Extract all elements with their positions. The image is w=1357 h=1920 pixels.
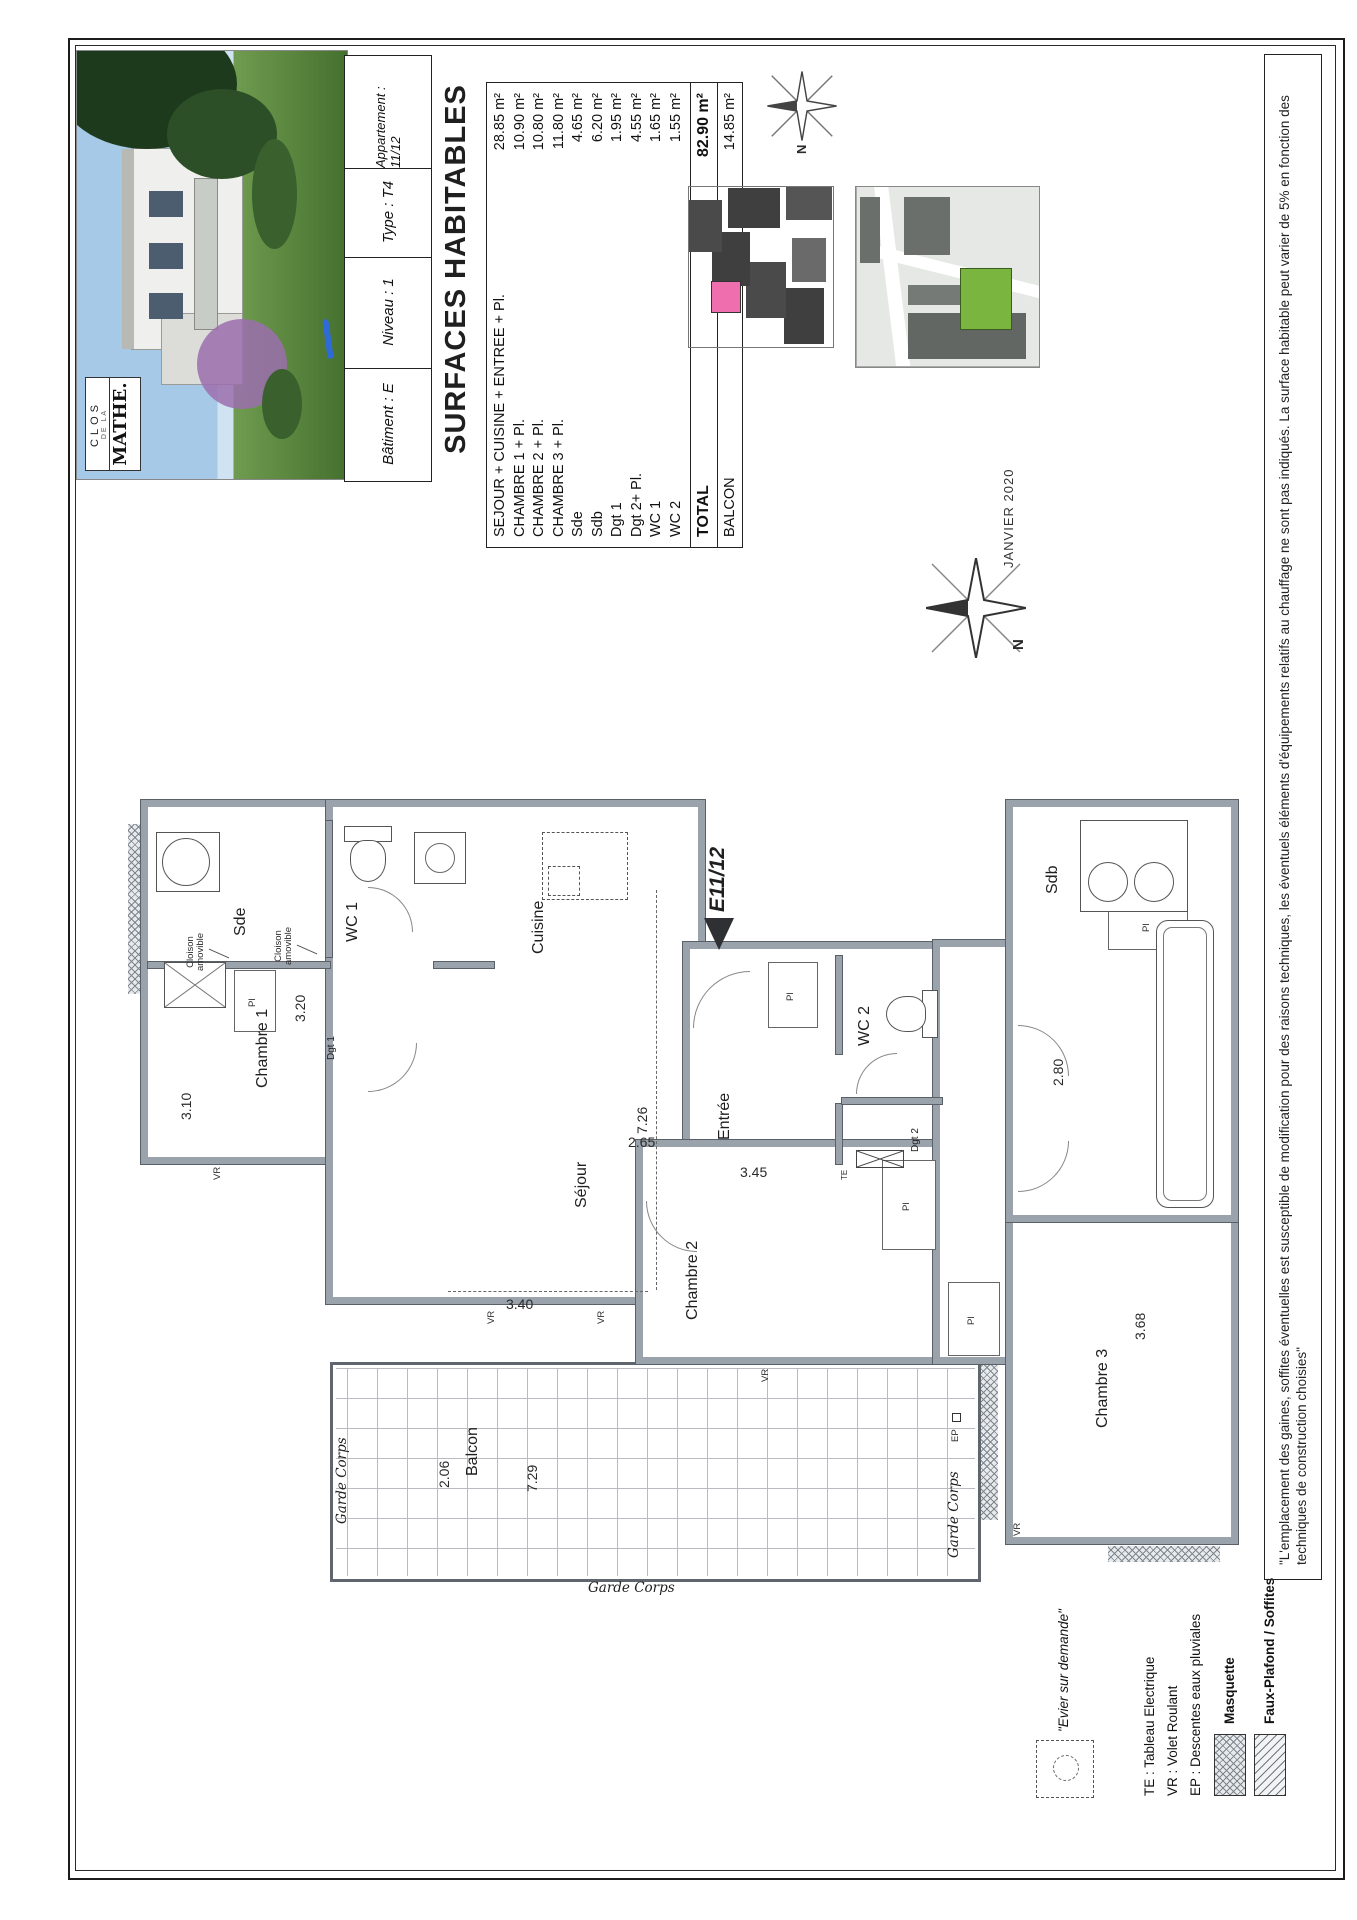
scanned-floorplan-page: { "page": { "date": "JANVIER 2020", "wat… (0, 0, 1357, 1920)
page-frame-inner (75, 45, 1336, 1871)
